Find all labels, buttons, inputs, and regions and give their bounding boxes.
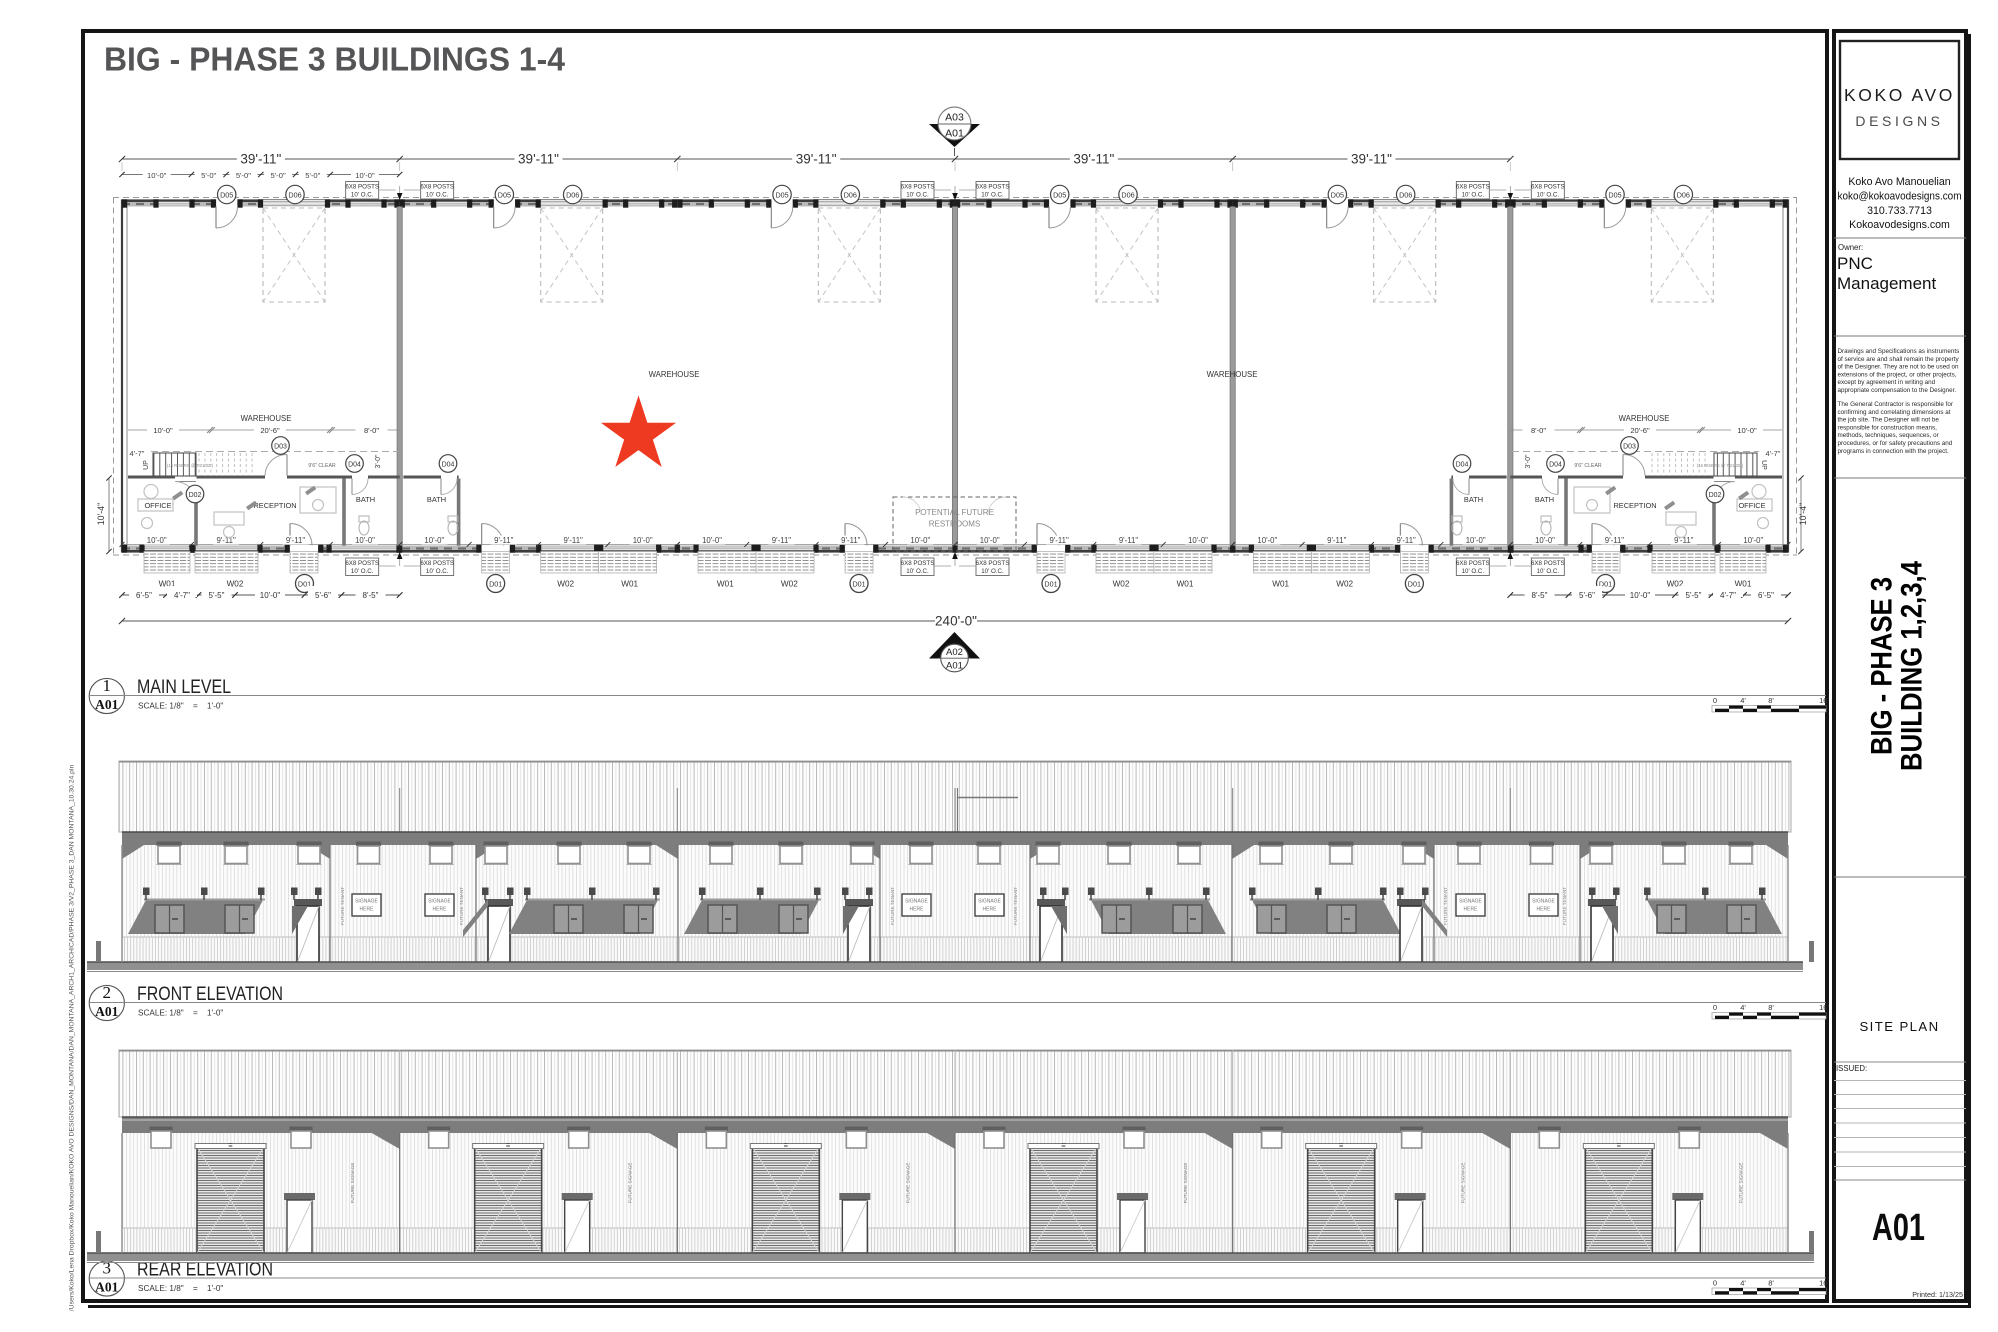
svg-text:D01: D01 [852,580,865,589]
svg-text:310.733.7713: 310.733.7713 [1867,205,1932,217]
svg-text:appropriate compensation to th: appropriate compensation to the Designer… [1838,387,1957,394]
svg-text:10'-0": 10'-0" [702,536,722,545]
svg-text:0: 0 [1713,696,1717,705]
svg-text:16': 16' [1819,1003,1829,1012]
svg-text:☰: ☰ [1061,1143,1066,1149]
svg-text:procedures, or for safety prec: procedures, or for safety precautions an… [1838,440,1953,447]
svg-text:0: 0 [1713,1003,1717,1012]
svg-text:BIG - PHASE 3 BUILDINGS 1-4: BIG - PHASE 3 BUILDINGS 1-4 [104,41,566,78]
svg-text:A01: A01 [95,1004,118,1019]
svg-text:SIGNAGE: SIGNAGE [905,899,928,905]
svg-text:5'-0": 5'-0" [271,171,286,180]
svg-text:1'-0": 1'-0" [207,1284,223,1293]
svg-text:10'-0": 10'-0" [1630,591,1651,600]
svg-text:SCALE: 1/8": SCALE: 1/8" [138,1009,184,1018]
svg-text:SITE PLAN: SITE PLAN [1859,1019,1939,1034]
svg-text:10' O.C.: 10' O.C. [426,568,449,575]
svg-text:FUTURE TENANT: FUTURE TENANT [340,887,345,925]
svg-text:8'-5": 8'-5" [363,591,379,600]
svg-text:OFFICE: OFFICE [144,501,171,510]
svg-text:koko@kokoavodesigns.com: koko@kokoavodesigns.com [1838,191,1962,203]
svg-text:BUILDING 1,2,3,4: BUILDING 1,2,3,4 [1896,561,1929,771]
svg-text:10' O.C.: 10' O.C. [981,192,1004,199]
svg-text:RECEPTION: RECEPTION [1613,501,1656,510]
svg-text:MAIN LEVEL: MAIN LEVEL [137,676,231,698]
svg-text:20'-6": 20'-6" [1630,426,1650,435]
svg-text:of service are and shall remai: of service are and shall remain the prop… [1838,356,1960,363]
svg-text:HERE: HERE [1464,907,1479,913]
svg-text:240'-0": 240'-0" [935,614,977,629]
svg-text:1: 1 [103,676,112,695]
svg-text:2: 2 [103,983,112,1002]
svg-text:39'-11": 39'-11" [1351,152,1392,167]
svg-text:☰: ☰ [506,1143,511,1149]
svg-text:9'-11": 9'-11" [564,536,584,545]
svg-text:D05: D05 [1331,191,1344,200]
svg-text:=: = [193,702,198,711]
svg-text:4'-7": 4'-7" [174,591,190,600]
svg-text:FUTURE SIGNAGE: FUTURE SIGNAGE [628,1163,633,1204]
svg-text:10' O.C.: 10' O.C. [1537,192,1560,199]
svg-text:8'-0": 8'-0" [364,426,379,435]
svg-text:A01: A01 [945,128,964,140]
svg-text:6'-5": 6'-5" [1758,591,1774,600]
svg-text:16': 16' [1819,1279,1829,1288]
svg-text:8'-0": 8'-0" [1531,426,1546,435]
svg-text:6X8 POSTS: 6X8 POSTS [345,560,379,567]
svg-text:10'-4": 10'-4" [1798,503,1808,525]
svg-text:10'-0": 10'-0" [980,536,1000,545]
svg-text:10' O.C.: 10' O.C. [351,192,374,199]
svg-text:D06: D06 [288,191,301,200]
svg-text:5'-5": 5'-5" [209,591,225,600]
svg-text:A01: A01 [95,1280,118,1295]
svg-text:D01: D01 [1044,580,1057,589]
svg-text:5'-0": 5'-0" [236,171,251,180]
svg-text:D05: D05 [1053,191,1066,200]
svg-text:4'-7": 4'-7" [130,449,145,458]
svg-text:HERE: HERE [983,907,998,913]
svg-text:A02: A02 [946,647,963,658]
svg-text:BATH: BATH [427,495,446,504]
svg-text:WAREHOUSE: WAREHOUSE [649,370,700,379]
svg-text:except by agreement in writing: except by agreement in writing and [1838,379,1936,386]
svg-text:10'-0": 10'-0" [633,536,653,545]
svg-text:W02: W02 [781,580,798,589]
svg-text:ISSUED:: ISSUED: [1836,1064,1867,1073]
svg-text:KOKO AVO: KOKO AVO [1844,85,1955,105]
svg-text:D02: D02 [189,492,202,499]
svg-text:D03: D03 [1623,443,1636,450]
svg-text:8': 8' [1768,696,1774,705]
svg-text:HERE: HERE [433,907,448,913]
svg-text:9'-11": 9'-11" [1327,536,1347,545]
svg-text:9'-11": 9'-11" [1605,536,1625,545]
svg-text:W01: W01 [1272,580,1289,589]
svg-text:D01: D01 [1408,580,1421,589]
svg-text:10'-0": 10'-0" [1257,536,1277,545]
svg-text:FUTURE TENANT: FUTURE TENANT [1443,887,1448,925]
svg-text:6X8 POSTS: 6X8 POSTS [420,184,454,191]
svg-text:5'-5": 5'-5" [1686,591,1702,600]
svg-text:10' O.C.: 10' O.C. [426,192,449,199]
svg-text:9'-11": 9'-11" [1119,536,1139,545]
svg-text:4'-7": 4'-7" [1766,449,1781,458]
svg-text:FUTURE SIGNAGE: FUTURE SIGNAGE [1461,1163,1466,1204]
svg-text:W02: W02 [557,580,574,589]
svg-text:10'-0": 10'-0" [355,171,375,180]
svg-text:FUTURE TENANT: FUTURE TENANT [890,887,895,925]
svg-text:20'-6": 20'-6" [260,426,280,435]
svg-text:W01: W01 [717,580,734,589]
svg-text:D06: D06 [1399,191,1412,200]
svg-text:10' O.C.: 10' O.C. [1537,568,1560,575]
svg-text:4': 4' [1740,696,1746,705]
svg-text:Management: Management [1837,274,1937,293]
svg-text:1'-0": 1'-0" [207,702,223,711]
svg-text:4'-7": 4'-7" [1720,591,1736,600]
svg-text:Kokoavodesigns.com: Kokoavodesigns.com [1849,219,1950,231]
svg-text:0: 0 [1713,1279,1717,1288]
svg-text:D04: D04 [1456,461,1469,468]
svg-text:SIGNAGE: SIGNAGE [1532,899,1555,905]
svg-text:=: = [193,1009,198,1018]
svg-text:SCALE: 1/8": SCALE: 1/8" [138,1284,184,1293]
svg-text:FUTURE SIGNAGE: FUTURE SIGNAGE [1738,1163,1743,1204]
svg-text:10' O.C.: 10' O.C. [1462,192,1485,199]
svg-text:FRONT ELEVATION: FRONT ELEVATION [137,983,283,1005]
svg-text:3'-0": 3'-0" [375,454,382,468]
svg-text:10'-0": 10'-0" [355,536,375,545]
svg-text:5'-0": 5'-0" [201,171,216,180]
svg-text:programs in connection with th: programs in connection with the project. [1838,448,1950,455]
svg-text:39'-11": 39'-11" [1073,152,1114,167]
svg-text:☰: ☰ [1617,1143,1622,1149]
svg-text:responsible for construction m: responsible for construction means, [1838,424,1938,431]
svg-text:6X8 POSTS: 6X8 POSTS [1456,184,1490,191]
svg-text:8': 8' [1768,1279,1774,1288]
svg-text:9'-11": 9'-11" [1049,536,1069,545]
svg-text:FUTURE TENANT: FUTURE TENANT [1562,887,1567,925]
svg-text:FUTURE SIGNAGE: FUTURE SIGNAGE [1183,1163,1188,1204]
svg-text:UP: UP [143,460,150,470]
svg-text:10'-0": 10'-0" [1535,536,1555,545]
svg-text:D05: D05 [220,191,233,200]
svg-text:FUTURE SIGNAGE: FUTURE SIGNAGE [350,1163,355,1204]
svg-text:6X8 POSTS: 6X8 POSTS [1531,184,1565,191]
svg-text:6X8 POSTS: 6X8 POSTS [1456,560,1490,567]
svg-text:HERE: HERE [910,907,925,913]
svg-text:BATH: BATH [1464,495,1483,504]
svg-text:HERE: HERE [1537,907,1552,913]
svg-text:10'-0": 10'-0" [147,171,167,180]
svg-text:extensions of the project, or: extensions of the project, or other proj… [1838,371,1957,378]
svg-text:Koko Avo Manouelian: Koko Avo Manouelian [1848,176,1950,188]
svg-text:FUTURE TENANT: FUTURE TENANT [1013,887,1018,925]
svg-text:☰: ☰ [784,1143,789,1149]
svg-text:D03: D03 [274,443,287,450]
svg-text:10' O.C.: 10' O.C. [351,568,374,575]
svg-text:(16 RISERS @ 7 21/32"): (16 RISERS @ 7 21/32") [167,463,214,468]
svg-text:the job site. The Designer wil: the job site. The Designer will not be [1838,417,1940,424]
svg-text:SIGNAGE: SIGNAGE [355,899,378,905]
svg-text:FUTURE TENANT: FUTURE TENANT [459,887,464,925]
svg-text:39'-11": 39'-11" [240,152,281,167]
svg-text:9'-11": 9'-11" [841,536,861,545]
svg-text:=: = [193,1284,198,1293]
svg-text:D01: D01 [489,580,502,589]
svg-text:D05: D05 [1608,191,1621,200]
svg-text:6X8 POSTS: 6X8 POSTS [420,560,454,567]
svg-text:10'-0": 10'-0" [147,536,167,545]
svg-text:39'-11": 39'-11" [518,152,559,167]
svg-text:WAREHOUSE: WAREHOUSE [1207,370,1258,379]
svg-text:6X8 POSTS: 6X8 POSTS [976,184,1010,191]
svg-text:D06: D06 [844,191,857,200]
svg-text:6X8 POSTS: 6X8 POSTS [345,184,379,191]
svg-text:W01: W01 [621,580,638,589]
svg-text:10'-0": 10'-0" [260,591,281,600]
svg-text:SIGNAGE: SIGNAGE [978,899,1001,905]
svg-text:8': 8' [1768,1003,1774,1012]
svg-text:☰: ☰ [228,1143,233,1149]
svg-text:9'-11": 9'-11" [1397,536,1417,545]
svg-text:D02: D02 [1709,492,1722,499]
svg-text:D05: D05 [775,191,788,200]
svg-text:W01: W01 [1177,580,1194,589]
svg-text:Printed: 1/13/25: Printed: 1/13/25 [1912,1290,1963,1299]
svg-text:BIG - PHASE 3: BIG - PHASE 3 [1866,577,1899,755]
svg-text:BATH: BATH [356,495,375,504]
svg-text:3'-0": 3'-0" [1525,454,1532,468]
svg-text:A03: A03 [945,112,964,124]
svg-text:3: 3 [103,1259,112,1278]
svg-text:4': 4' [1740,1279,1746,1288]
svg-text:UP: UP [1760,460,1767,470]
svg-text:RESTROOMS: RESTROOMS [929,520,981,529]
svg-text:Drawings and Specifications as: Drawings and Specifications as instrumen… [1838,348,1960,355]
svg-text:8'-5": 8'-5" [1532,591,1548,600]
svg-text:D06: D06 [1677,191,1690,200]
svg-text:10' O.C.: 10' O.C. [906,192,929,199]
svg-text:A01: A01 [1872,1207,1925,1249]
svg-text:A01: A01 [946,661,963,672]
svg-text:9'6" CLEAR: 9'6" CLEAR [1574,463,1602,469]
svg-text:Owner:: Owner: [1838,243,1863,252]
svg-text:10'-0": 10'-0" [1743,536,1763,545]
svg-text:10' O.C.: 10' O.C. [981,568,1004,575]
svg-text:9'-11": 9'-11" [1674,536,1694,545]
svg-text:6X8 POSTS: 6X8 POSTS [901,184,935,191]
svg-text:A01: A01 [95,697,118,712]
svg-text:39'-11": 39'-11" [796,152,837,167]
svg-text:6X8 POSTS: 6X8 POSTS [1531,560,1565,567]
svg-text:9'-11": 9'-11" [494,536,514,545]
svg-text:5'-0": 5'-0" [305,171,320,180]
svg-text:D05: D05 [498,191,511,200]
svg-text:16': 16' [1819,696,1829,705]
svg-text:6X8 POSTS: 6X8 POSTS [976,560,1010,567]
svg-text:WAREHOUSE: WAREHOUSE [241,414,292,423]
svg-text:W02: W02 [1336,580,1353,589]
svg-text:confirming and correlating dim: confirming and correlating dimensions at [1838,409,1951,416]
svg-text:The General Contractor is resp: The General Contractor is responsible fo… [1838,401,1954,408]
svg-text:5'-6": 5'-6" [1579,591,1595,600]
svg-text:10' O.C.: 10' O.C. [1462,568,1485,575]
svg-text:W02: W02 [1113,580,1130,589]
svg-text:10'-0": 10'-0" [1737,426,1757,435]
svg-text:DESIGNS: DESIGNS [1855,113,1943,129]
svg-text:10'-0": 10'-0" [910,536,930,545]
svg-text:10'-0": 10'-0" [424,536,444,545]
svg-text:10'-0": 10'-0" [1188,536,1208,545]
svg-text:/Users/Koko/Lena Dropbox/Koko: /Users/Koko/Lena Dropbox/Koko Manouelian… [69,765,76,1312]
svg-text:1'-0": 1'-0" [207,1009,223,1018]
svg-text:D04: D04 [348,461,361,468]
svg-text:SIGNAGE: SIGNAGE [1459,899,1482,905]
svg-text:D04: D04 [442,461,455,468]
svg-text:6'-5": 6'-5" [136,591,152,600]
svg-text:PNC: PNC [1837,254,1873,273]
svg-text:FUTURE SIGNAGE: FUTURE SIGNAGE [905,1163,910,1204]
svg-text:9'-11": 9'-11" [772,536,792,545]
svg-text:9'-11": 9'-11" [286,536,306,545]
svg-text:RECEPTION: RECEPTION [253,501,296,510]
svg-text:10'-0": 10'-0" [153,426,173,435]
svg-text:D04: D04 [1549,461,1562,468]
svg-text:(16 RISERS @ 7 21/32"): (16 RISERS @ 7 21/32") [1697,463,1744,468]
svg-text:WAREHOUSE: WAREHOUSE [1619,414,1670,423]
svg-text:POTENTIAL FUTURE: POTENTIAL FUTURE [915,508,994,517]
svg-text:REAR ELEVATION: REAR ELEVATION [137,1259,273,1281]
svg-text:D06: D06 [566,191,579,200]
svg-text:SCALE: 1/8": SCALE: 1/8" [138,702,184,711]
svg-text:SIGNAGE: SIGNAGE [428,899,451,905]
svg-text:methods, techniques, sequences: methods, techniques, sequences, or [1838,432,1939,439]
svg-text:4': 4' [1740,1003,1746,1012]
svg-text:10' O.C.: 10' O.C. [906,568,929,575]
svg-text:BATH: BATH [1535,495,1554,504]
svg-text:5'-6": 5'-6" [315,591,331,600]
svg-text:9'6" CLEAR: 9'6" CLEAR [308,463,336,469]
svg-text:10'-0": 10'-0" [1466,536,1486,545]
svg-text:HERE: HERE [360,907,375,913]
svg-text:of the Designer. They are not: of the Designer. They are not to be used… [1838,364,1960,371]
svg-text:10'-4": 10'-4" [96,503,106,525]
svg-text:6X8 POSTS: 6X8 POSTS [901,560,935,567]
svg-text:☰: ☰ [1339,1143,1344,1149]
svg-text:D06: D06 [1121,191,1134,200]
svg-text:OFFICE: OFFICE [1738,501,1765,510]
